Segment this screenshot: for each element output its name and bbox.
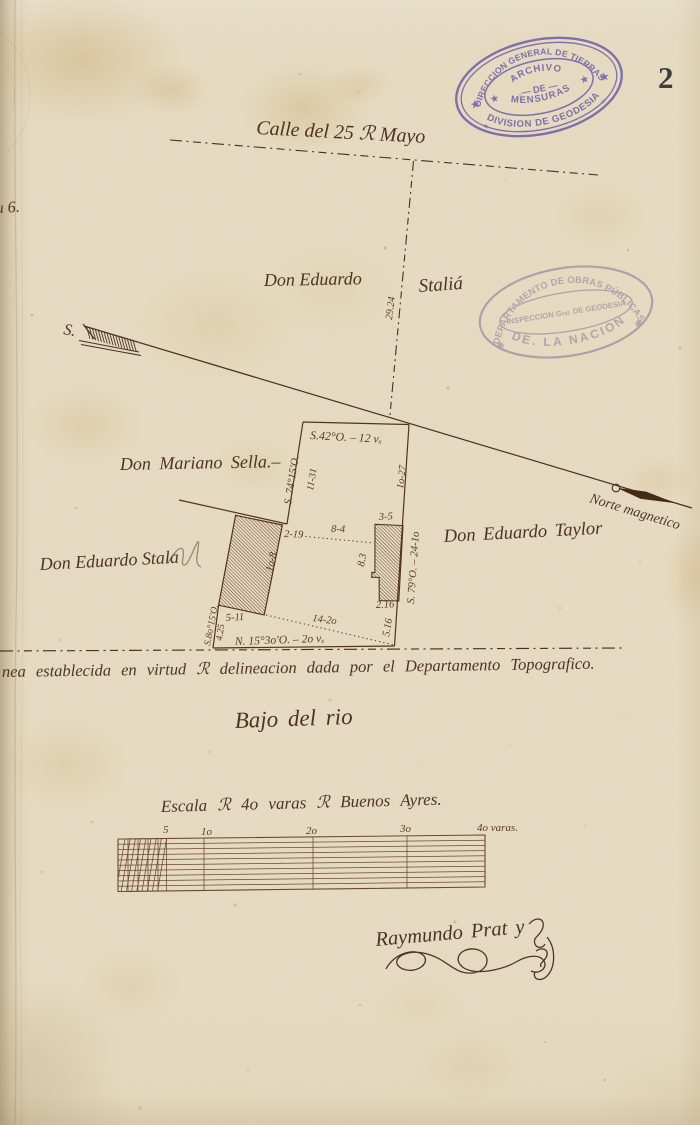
svg-text:8.3: 8.3 xyxy=(356,553,369,568)
svg-text:Don Mariano Sella.–: Don Mariano Sella.– xyxy=(119,451,282,474)
svg-text:Bajo del rio: Bajo del rio xyxy=(234,704,353,733)
svg-text:2o: 2o xyxy=(306,825,318,837)
svg-text:2.16: 2.16 xyxy=(376,599,395,611)
svg-text:u 6.: u 6. xyxy=(0,199,20,218)
svg-text:Staliá: Staliá xyxy=(418,273,464,297)
svg-text:1o: 1o xyxy=(201,826,213,838)
svg-text:5: 5 xyxy=(163,824,169,836)
svg-text:3-5: 3-5 xyxy=(378,511,394,523)
svg-text:4o varas.: 4o varas. xyxy=(477,822,518,834)
svg-text:2: 2 xyxy=(658,60,674,95)
svg-text:5-11: 5-11 xyxy=(225,612,244,624)
svg-text:Don Eduardo: Don Eduardo xyxy=(263,268,362,290)
svg-text:2-19: 2-19 xyxy=(284,529,304,541)
svg-text:8-4: 8-4 xyxy=(331,524,346,536)
svg-text:3o: 3o xyxy=(399,823,412,835)
